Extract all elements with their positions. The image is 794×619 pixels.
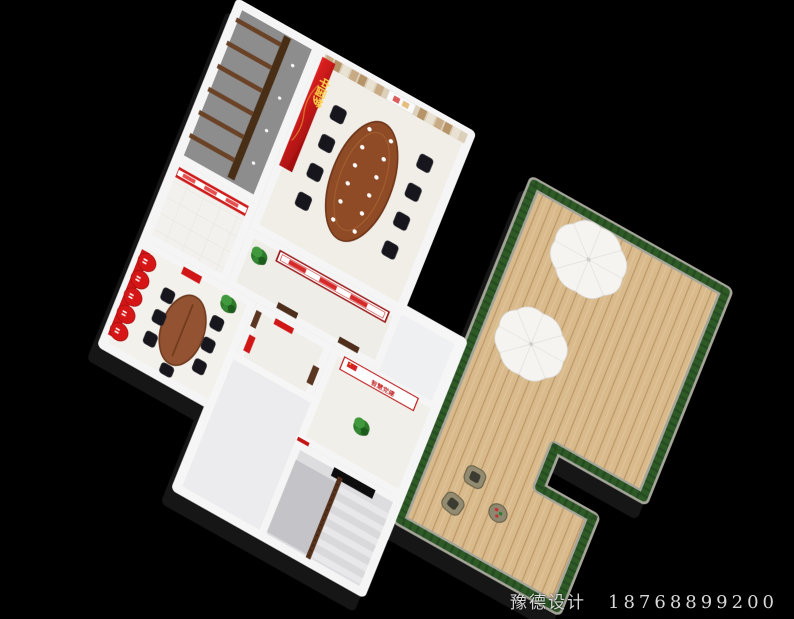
watermark: 豫德设计18768899200 xyxy=(510,588,778,613)
watermark-brand: 豫德设计 xyxy=(510,593,586,613)
floorplan-3d-render: 中国梦 xyxy=(0,0,794,619)
watermark-phone: 18768899200 xyxy=(608,592,778,613)
render-canvas: 中国梦 xyxy=(0,0,794,619)
